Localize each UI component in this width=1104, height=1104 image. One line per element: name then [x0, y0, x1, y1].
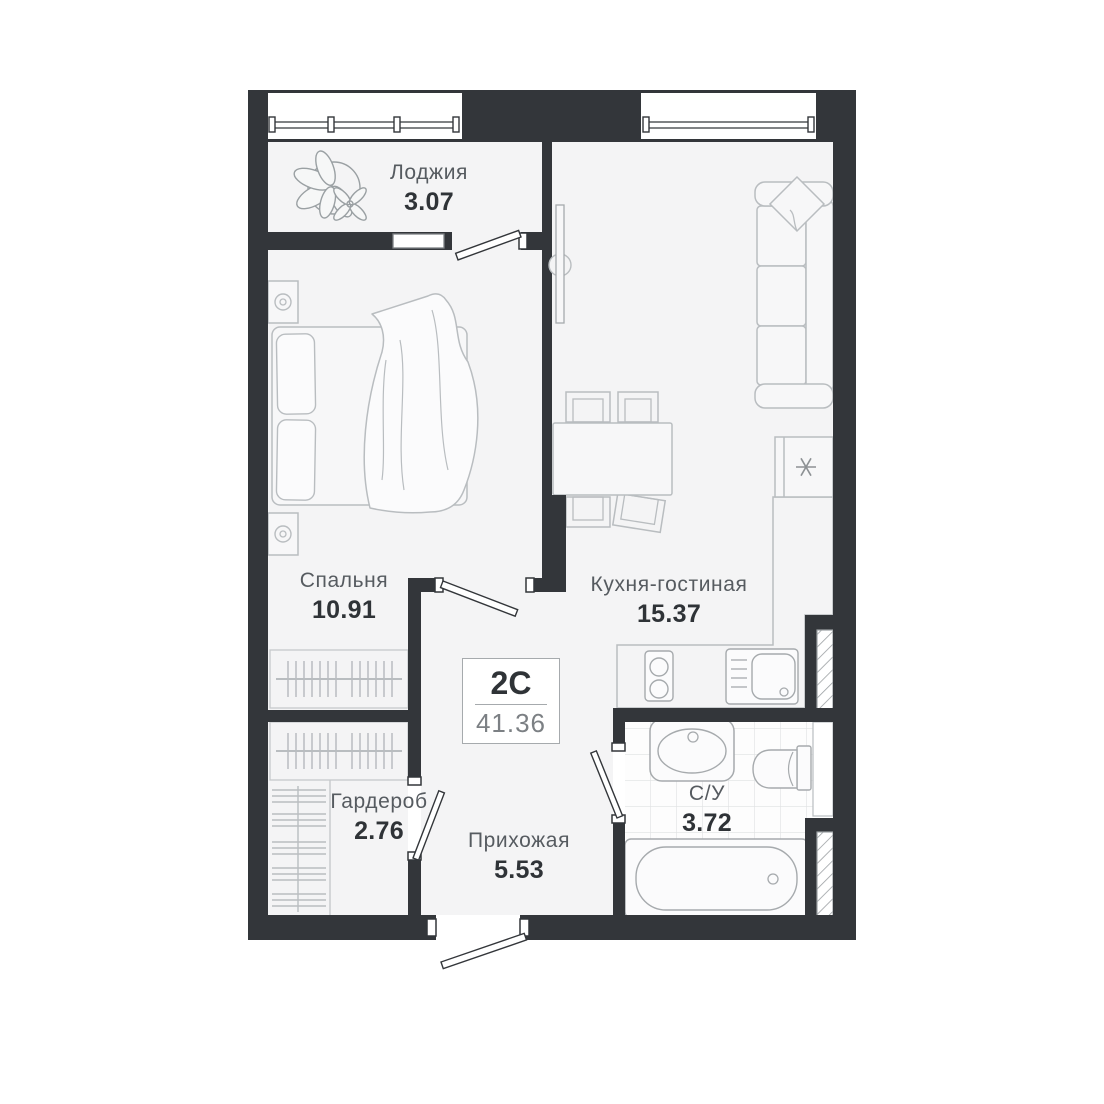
stove-icon — [645, 651, 673, 701]
entrance-opening — [436, 915, 520, 940]
unit-type-label: 2С — [491, 667, 532, 699]
floorplan-canvas: Лоджия 3.07 Спальня 10.91 Кухня-гостиная… — [0, 0, 1104, 1104]
washbasin-icon — [650, 719, 734, 781]
kitchen-sink-icon — [726, 649, 798, 704]
loggia-inner-window-icon — [393, 234, 444, 248]
floor-plan-svg — [0, 0, 1104, 1104]
vent-shaft-icon — [805, 615, 833, 712]
vent-shaft-icon — [805, 818, 833, 918]
window-icon — [641, 93, 816, 139]
chair-icon — [618, 392, 658, 422]
sofa-icon — [755, 177, 833, 408]
unit-total-area: 41.36 — [476, 710, 546, 736]
fridge-icon — [775, 437, 833, 497]
bathtub-icon — [625, 839, 808, 918]
hanger-rail-icon — [270, 650, 408, 708]
nightstand-lamp-icon — [268, 513, 298, 555]
unit-info-box: 2С 41.36 — [462, 658, 560, 744]
unit-box-divider — [475, 704, 547, 705]
duct-niche — [813, 722, 833, 816]
hanger-rail-icon — [270, 722, 408, 780]
window-icon — [268, 93, 462, 139]
nightstand-lamp-icon — [268, 281, 298, 323]
bed-icon — [272, 294, 478, 513]
chair-icon — [613, 493, 665, 532]
toilet-icon — [753, 746, 811, 790]
